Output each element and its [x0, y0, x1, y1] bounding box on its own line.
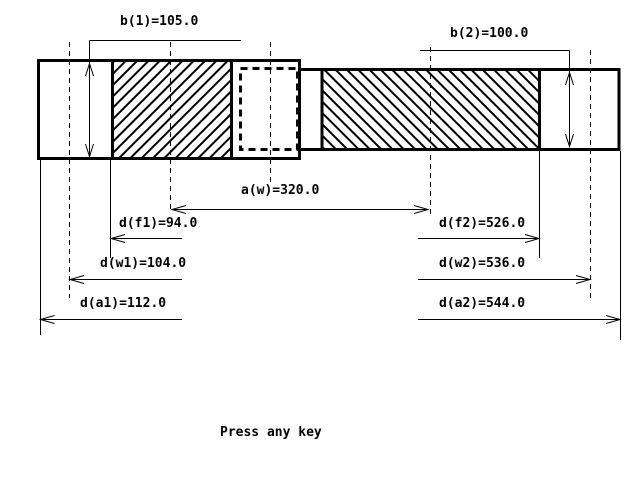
dimension-label-df1: d(f1)=94.0: [119, 218, 197, 229]
dimension-da2-lines: [418, 316, 620, 324]
dimension-da1-lines: [41, 316, 183, 324]
dimension-df1-lines: [111, 235, 182, 243]
status-prompt: Press any key: [220, 427, 322, 438]
dimension-dw2-lines: [418, 276, 590, 284]
hidden-wheel-outline-dashed: [241, 69, 298, 150]
dimension-dw1-lines: [70, 276, 182, 284]
dimension-label-da2: d(a2)=544.0: [439, 298, 525, 309]
dimension-label-b2: b(2)=100.0: [450, 28, 528, 39]
dimension-label-dw1: d(w1)=104.0: [100, 258, 186, 269]
dimension-df2-lines: [418, 235, 539, 243]
dimension-label-df2: d(f2)=526.0: [439, 218, 525, 229]
gear-program-screen: b(1)=105.0 b(2)=100.0 a(w)=320.0 d(f1)=9…: [0, 0, 640, 480]
extension-lines: [41, 151, 621, 340]
gear-pair-drawing: [0, 0, 640, 480]
dimension-label-b1: b(1)=105.0: [120, 16, 198, 27]
pinion-hatch-section: [112, 60, 232, 160]
dimension-label-aw: a(w)=320.0: [241, 185, 319, 196]
dimension-aw-lines: [172, 206, 428, 214]
dimension-label-da1: d(a1)=112.0: [80, 298, 166, 309]
dimension-label-dw2: d(w2)=536.0: [439, 258, 525, 269]
